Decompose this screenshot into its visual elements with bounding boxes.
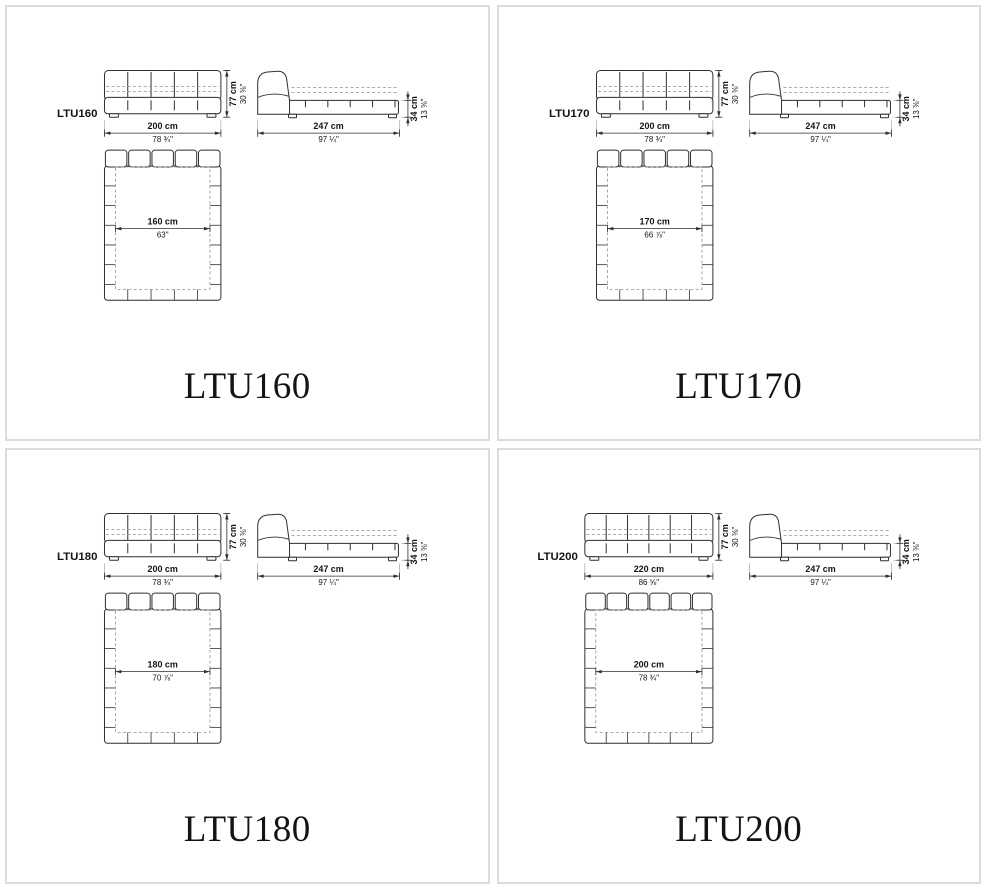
- height-cm: 77 cm: [228, 524, 238, 549]
- side-length-in: 97 ¼": [318, 578, 339, 587]
- front-width-in: 78 ¾": [644, 135, 665, 144]
- panel-ltu160: LTU160200 cm78 ¾"77 cm30 ⅜"247 cm97 ¼"34…: [5, 5, 490, 441]
- front-width-cm: 200 cm: [148, 121, 178, 131]
- mattress-width-cm: 200 cm: [633, 660, 663, 670]
- mattress-width-in: 78 ¾": [638, 674, 659, 683]
- base-height-in: 13 ⅜": [420, 98, 429, 119]
- model-title: LTU200: [675, 808, 802, 851]
- front-width-in: 86 ⅝": [638, 578, 659, 587]
- panel-ltu180: LTU180200 cm78 ¾"77 cm30 ⅜"247 cm97 ¼"34…: [5, 448, 490, 884]
- panel-ltu170: LTU170200 cm78 ¾"77 cm30 ⅜"247 cm97 ¼"34…: [497, 5, 982, 441]
- panel-ltu200: LTU200220 cm86 ⅝"77 cm30 ⅜"247 cm97 ¼"34…: [497, 448, 982, 884]
- mattress-width-cm: 160 cm: [148, 217, 178, 227]
- base-height-in: 13 ⅜": [911, 541, 920, 562]
- side-length-cm: 247 cm: [805, 564, 835, 574]
- base-height-cm: 34 cm: [409, 96, 419, 121]
- height-in: 30 ⅜": [239, 83, 248, 104]
- side-length-cm: 247 cm: [805, 121, 835, 131]
- ltu160-technical-drawing: LTU160200 cm78 ¾"77 cm30 ⅜"247 cm97 ¼"34…: [7, 7, 488, 319]
- mattress-width-in: 63": [157, 231, 169, 240]
- front-width-cm: 220 cm: [633, 564, 663, 574]
- model-label: LTU160: [57, 108, 97, 120]
- ltu200-technical-drawing: LTU200220 cm86 ⅝"77 cm30 ⅜"247 cm97 ¼"34…: [499, 450, 980, 762]
- model-title: LTU180: [184, 808, 311, 851]
- base-height-in: 13 ⅜": [420, 541, 429, 562]
- ltu170-technical-drawing: LTU170200 cm78 ¾"77 cm30 ⅜"247 cm97 ¼"34…: [499, 7, 980, 319]
- height-in: 30 ⅜": [730, 526, 739, 547]
- base-height-cm: 34 cm: [900, 539, 910, 564]
- ltu180-technical-drawing: LTU180200 cm78 ¾"77 cm30 ⅜"247 cm97 ¼"34…: [7, 450, 488, 762]
- model-label: LTU170: [549, 108, 589, 120]
- side-length-in: 97 ¼": [318, 135, 339, 144]
- side-length-cm: 247 cm: [313, 564, 343, 574]
- height-cm: 77 cm: [228, 81, 238, 106]
- base-height-cm: 34 cm: [900, 96, 910, 121]
- model-label: LTU200: [537, 551, 577, 563]
- mattress-width-in: 66 ⅞": [644, 231, 665, 240]
- model-label: LTU180: [57, 551, 97, 563]
- front-width-in: 78 ¾": [152, 135, 173, 144]
- height-cm: 77 cm: [719, 524, 729, 549]
- model-title: LTU160: [184, 365, 311, 408]
- model-title: LTU170: [675, 365, 802, 408]
- side-length-in: 97 ¼": [810, 578, 831, 587]
- front-width-in: 78 ¾": [152, 578, 173, 587]
- front-width-cm: 200 cm: [639, 121, 669, 131]
- mattress-width-cm: 180 cm: [148, 660, 178, 670]
- height-in: 30 ⅜": [239, 526, 248, 547]
- height-cm: 77 cm: [719, 81, 729, 106]
- base-height-cm: 34 cm: [409, 539, 419, 564]
- spec-sheet-grid: LTU160200 cm78 ¾"77 cm30 ⅜"247 cm97 ¼"34…: [0, 0, 986, 889]
- mattress-width-cm: 170 cm: [639, 217, 669, 227]
- side-length-in: 97 ¼": [810, 135, 831, 144]
- mattress-width-in: 70 ⅞": [152, 674, 173, 683]
- front-width-cm: 200 cm: [148, 564, 178, 574]
- side-length-cm: 247 cm: [313, 121, 343, 131]
- base-height-in: 13 ⅜": [911, 98, 920, 119]
- height-in: 30 ⅜": [730, 83, 739, 104]
